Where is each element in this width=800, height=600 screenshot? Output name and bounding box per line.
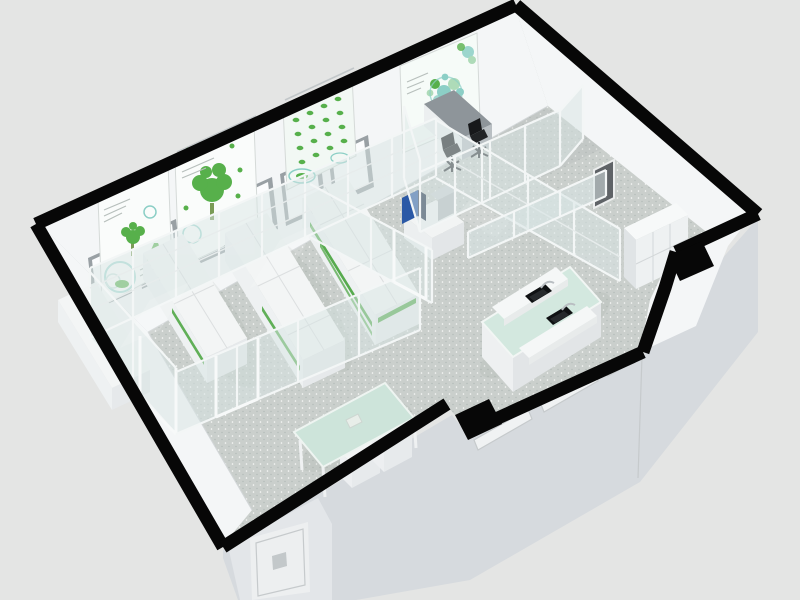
render-canvas: 3D isometric cutaway render of a laborat… (0, 0, 800, 600)
lab-floorplan-render: 3D isometric cutaway render of a laborat… (0, 0, 800, 600)
